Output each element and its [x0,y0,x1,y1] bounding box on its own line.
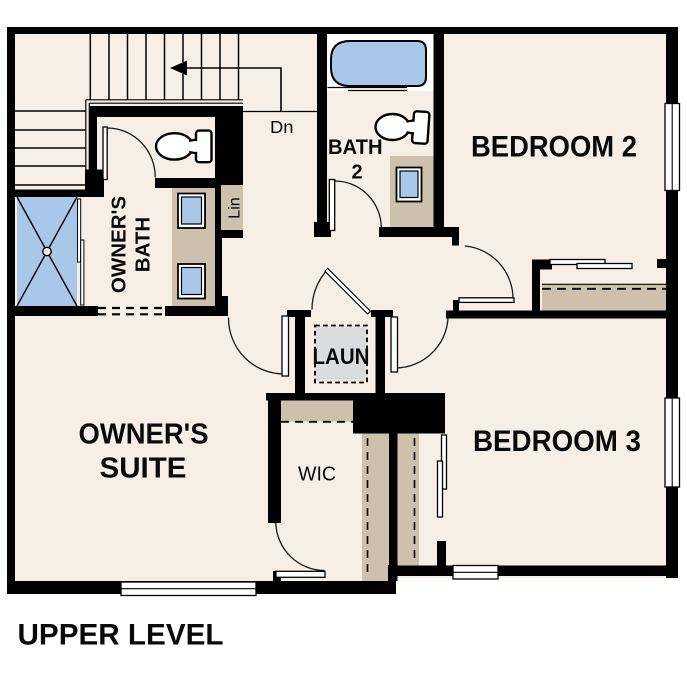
svg-text:2: 2 [351,162,362,184]
svg-text:BEDROOM 2: BEDROOM 2 [471,131,637,164]
svg-text:OWNER'S: OWNER'S [79,419,209,451]
svg-text:BEDROOM 3: BEDROOM 3 [473,425,641,458]
svg-text:WIC: WIC [298,464,336,486]
svg-text:UPPER LEVEL: UPPER LEVEL [18,619,224,652]
svg-text:LAUN: LAUN [313,344,370,369]
svg-text:OWNER'S: OWNER'S [108,196,131,293]
svg-text:BATH: BATH [132,217,155,272]
svg-text:BATH: BATH [328,136,383,159]
svg-text:Lin: Lin [227,197,244,218]
svg-text:SUITE: SUITE [100,453,187,485]
svg-text:Dn: Dn [270,117,294,137]
